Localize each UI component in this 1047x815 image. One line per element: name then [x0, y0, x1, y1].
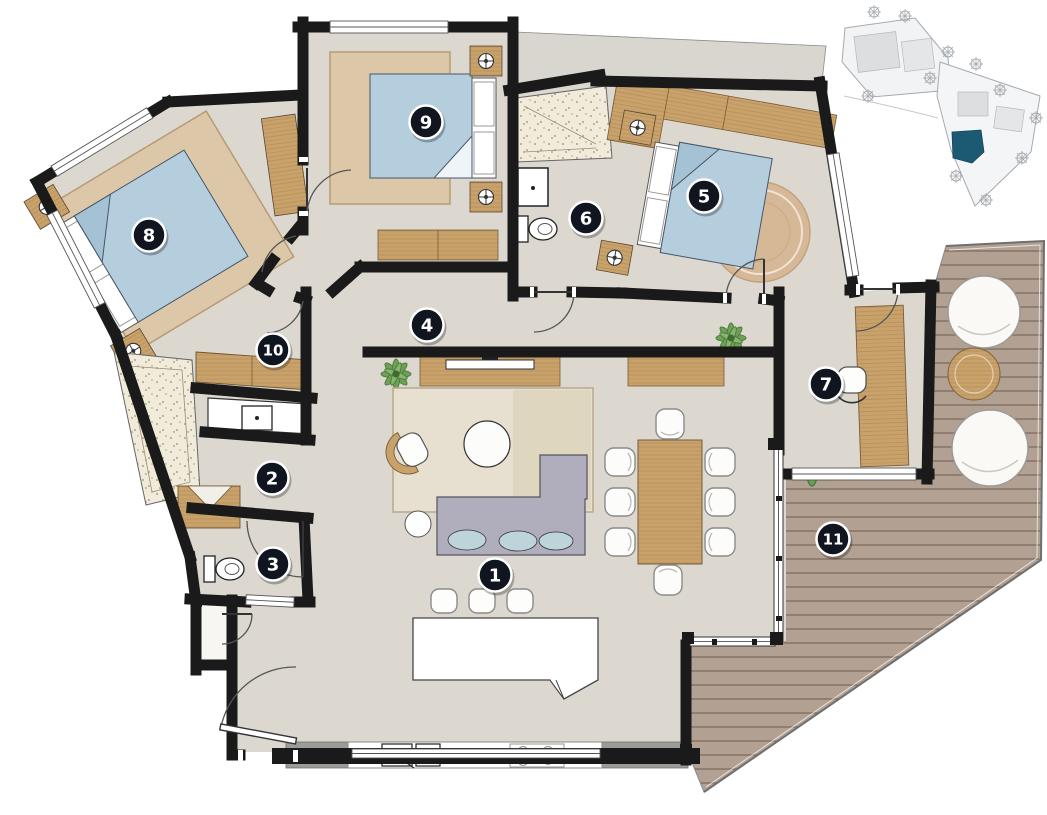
site-roof: [854, 32, 900, 73]
coffee-table: [464, 421, 510, 467]
svg-text:11: 11: [823, 530, 844, 548]
svg-text:7: 7: [820, 374, 833, 395]
dining-chair: [654, 565, 682, 595]
shower-area: [516, 86, 612, 162]
svg-text:8: 8: [143, 225, 156, 246]
lamp-icon: [479, 54, 494, 69]
dining-chair: [605, 528, 635, 556]
glazing-post: [770, 632, 783, 645]
dining-chair: [605, 488, 635, 516]
dining-chair: [605, 448, 635, 476]
svg-text:9: 9: [420, 112, 433, 133]
window: [246, 595, 294, 607]
glazing-post: [682, 632, 694, 644]
toilet-tank: [204, 556, 215, 582]
window: [352, 749, 600, 758]
svg-text:1: 1: [489, 565, 502, 586]
lounge-chair: [948, 276, 1020, 348]
dining-chair: [705, 488, 735, 516]
plant-icon: [381, 359, 411, 389]
sideboard: [628, 356, 724, 386]
floor-plan-canvas: 1234567891011: [0, 0, 1047, 815]
floor-plan-page: 1234567891011: [0, 0, 1047, 815]
svg-text:4: 4: [421, 315, 434, 336]
tv-icon: [446, 360, 534, 369]
glazing-post: [680, 744, 692, 756]
toilet-icon: [529, 218, 557, 240]
dining-chair: [656, 409, 684, 439]
sliding-glass-door: [690, 637, 775, 646]
svg-text:2: 2: [266, 468, 279, 489]
site-road: [844, 96, 938, 118]
dining-table: [638, 440, 702, 564]
window: [330, 21, 448, 33]
site-roof: [958, 92, 988, 116]
dining-chair: [705, 448, 735, 476]
window: [792, 468, 916, 480]
sofa-cushion: [499, 531, 537, 551]
bar-stool: [431, 589, 457, 613]
svg-text:6: 6: [580, 208, 593, 229]
sink-drain: [531, 186, 535, 190]
svg-text:5: 5: [698, 186, 711, 207]
dining-chair: [705, 528, 735, 556]
pillow: [474, 132, 494, 174]
toilet-icon: [216, 558, 244, 580]
glazing-post: [768, 438, 784, 450]
sliding-glass-door: [774, 447, 783, 641]
site-roof: [994, 106, 1025, 132]
lounge-chair: [952, 410, 1028, 486]
svg-text:10: 10: [263, 341, 284, 359]
toilet-tank: [517, 216, 528, 242]
site-plan: [842, 5, 1043, 207]
sink-drain: [255, 416, 259, 420]
sofa-cushion: [539, 532, 573, 550]
side-table: [948, 348, 1000, 400]
svg-text:3: 3: [267, 554, 280, 575]
guest-wc-3: [204, 556, 244, 582]
pillow: [474, 82, 494, 126]
site-roof: [901, 38, 934, 71]
entry-closet-floor: [198, 602, 230, 664]
side-table: [405, 511, 431, 537]
sofa-cushion: [448, 530, 486, 550]
lamp-icon: [479, 190, 494, 205]
bar-stool: [507, 589, 533, 613]
